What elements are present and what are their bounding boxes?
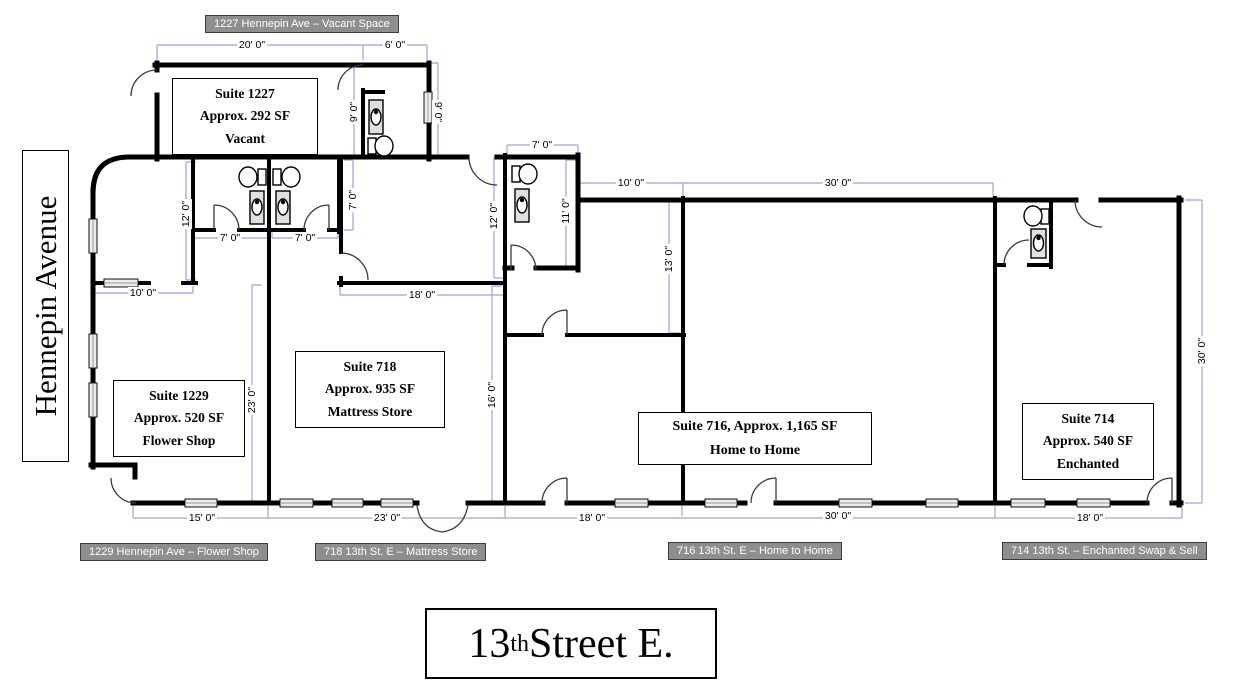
suite-1227-line3: Vacant [225, 128, 265, 150]
dimension-label: 7' 0" [347, 188, 359, 212]
suite-716-line2: Home to Home [710, 439, 800, 462]
door-bath-716 [511, 245, 536, 270]
suite-714-line3: Enchanted [1057, 453, 1119, 475]
suite-1227-line2: Approx. 292 SF [200, 105, 290, 127]
toilet-icon [273, 167, 300, 187]
dimension-label: 9' 0" [348, 100, 360, 124]
dimension-label: 7' 0" [218, 232, 242, 244]
suite-1229-line2: Approx. 520 SF [134, 407, 224, 429]
door-suite1227-entry [131, 70, 157, 96]
suite-1229-line3: Flower Shop [143, 430, 216, 452]
window [280, 499, 313, 507]
dimension-label: 12' 0" [488, 201, 500, 231]
dimension-label: 20' 0" [237, 39, 267, 51]
suite-1229-line1: Suite 1229 [149, 385, 209, 407]
dimension-label: 12' 0" [180, 199, 192, 229]
door-restroom-left [214, 205, 239, 230]
window [332, 499, 363, 507]
suite-1227-box: Suite 1227 Approx. 292 SF Vacant [172, 78, 318, 155]
suite-714-line1: Suite 714 [1062, 408, 1115, 430]
window [89, 383, 97, 417]
dimension-label: 23' 0" [372, 512, 402, 524]
dimension-label: 18' 0" [1075, 512, 1105, 524]
dimension-label: 10' 0" [128, 287, 158, 299]
sink-icon [369, 100, 383, 134]
window [104, 279, 138, 287]
suite-1227-line1: Suite 1227 [215, 83, 275, 105]
dimension-label: 9' 0" [432, 100, 444, 124]
dimension-label: 18' 0" [407, 289, 437, 301]
window [926, 499, 958, 507]
suite-716-line1: Suite 716, Approx. 1,165 SF [672, 415, 837, 438]
sink-icon [515, 189, 529, 222]
suite-714-box: Suite 714 Approx. 540 SF Enchanted [1022, 403, 1154, 480]
door-bath-714 [1004, 240, 1029, 265]
street-number: 13 [468, 620, 510, 668]
address-tag-1227: 1227 Hennepin Ave – Vacant Space [205, 15, 399, 33]
dimension-label: 16' 0" [486, 380, 498, 410]
13th-street-label: 13th Street E. [425, 608, 717, 679]
window [1077, 499, 1110, 507]
window [705, 499, 737, 507]
door-top-714 [1075, 200, 1102, 227]
window [89, 334, 97, 368]
dimension-label: 11' 0" [560, 196, 572, 225]
dimension-label: 30' 0" [823, 177, 853, 189]
door-restroom-right [304, 205, 329, 230]
window [1011, 499, 1045, 507]
hennepin-avenue-text: Hennepin Avenue [28, 196, 64, 417]
dimension-label: 18' 0" [577, 512, 607, 524]
toilet-icon [1024, 206, 1049, 226]
street-name: Street E. [529, 620, 674, 668]
floor-plan: Hennepin Avenue 13th Street E. 1227 Henn… [0, 0, 1239, 697]
address-tag-714: 714 13th St. – Enchanted Swap & Sell [1002, 542, 1207, 560]
dimension-label: 15' 0" [187, 512, 217, 524]
suite-718-line3: Mattress Store [328, 401, 413, 423]
dimension-label: 30' 0" [1196, 336, 1208, 366]
address-tag-1229: 1229 Hennepin Ave – Flower Shop [80, 543, 268, 561]
suite-1229-box: Suite 1229 Approx. 520 SF Flower Shop [113, 380, 245, 457]
address-tag-716: 716 13th St. E – Home to Home [668, 542, 842, 560]
door-suite1227-bath [338, 65, 363, 90]
suite-718-line1: Suite 718 [344, 356, 397, 378]
dimension-label: 13' 0" [663, 244, 675, 274]
sink-icon [276, 191, 290, 224]
window [381, 499, 413, 507]
toilet-icon [512, 164, 537, 184]
dimension-label: 6' 0" [383, 39, 407, 51]
door-bottom-716 [751, 478, 776, 503]
door-bottom-714 [1147, 478, 1172, 503]
window [839, 499, 872, 507]
dimension-label: 7' 0" [530, 139, 554, 151]
dimension-label: 10' 0" [616, 177, 646, 189]
dimension-label: 23' 0" [246, 385, 258, 415]
dimension-label: 30' 0" [823, 510, 853, 522]
door-flowershop-entry [111, 478, 136, 503]
toilet-icon [368, 136, 393, 156]
door-backroom-718 [341, 253, 368, 280]
sink-icon [250, 191, 264, 224]
toilet-icon [239, 167, 266, 187]
window [615, 499, 648, 507]
sink-icon [1031, 229, 1046, 258]
dimension-label: 7' 0" [293, 232, 317, 244]
suite-718-box: Suite 718 Approx. 935 SF Mattress Store [295, 351, 445, 428]
door-frontroom-716 [542, 310, 567, 335]
window [185, 499, 217, 507]
suite-714-line2: Approx. 540 SF [1043, 430, 1133, 452]
address-tag-718: 718 13th St. E – Mattress Store [315, 543, 486, 561]
door-bottom-718b [542, 478, 567, 503]
hennepin-avenue-label: Hennepin Avenue [22, 150, 69, 462]
suite-718-line2: Approx. 935 SF [325, 378, 415, 400]
window [89, 219, 97, 253]
door-rear-entry [469, 157, 497, 185]
suite-716-box: Suite 716, Approx. 1,165 SF Home to Home [638, 412, 872, 465]
window [424, 92, 432, 123]
